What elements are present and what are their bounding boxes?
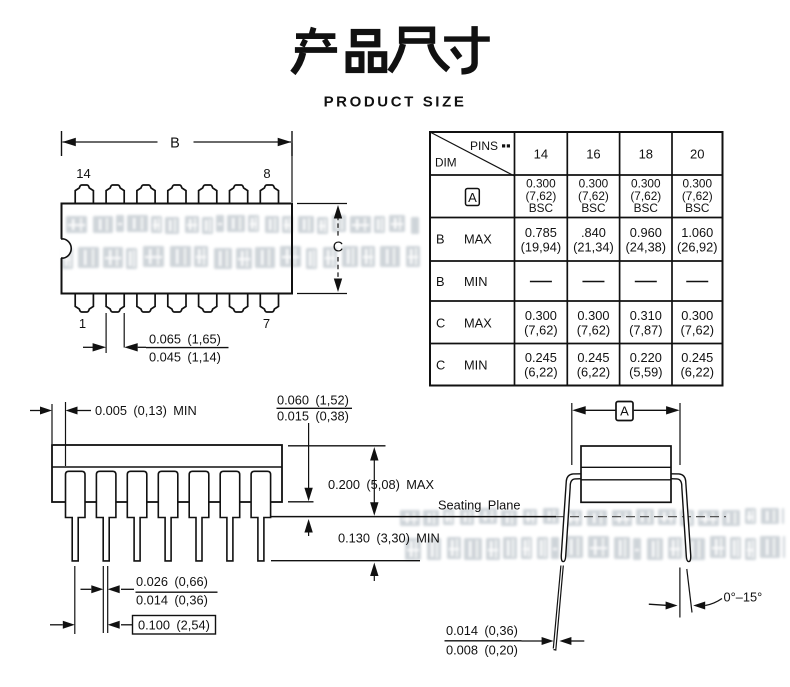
svg-text:1: 1 — [79, 316, 86, 331]
svg-text:0.014 (0,36): 0.014 (0,36) — [446, 623, 518, 638]
svg-text:0.005 (0,13) MIN: 0.005 (0,13) MIN — [95, 403, 197, 418]
svg-text:A: A — [620, 404, 629, 419]
svg-text:C: C — [436, 316, 445, 331]
svg-text:0.245: 0.245 — [525, 350, 557, 365]
svg-text:DIM: DIM — [435, 156, 457, 170]
svg-text:(5,59): (5,59) — [629, 365, 662, 380]
svg-text:16: 16 — [586, 147, 600, 162]
svg-text:0.060 (1,52): 0.060 (1,52) — [277, 393, 349, 408]
svg-text:0.245: 0.245 — [577, 350, 609, 365]
svg-text:0.220: 0.220 — [630, 350, 662, 365]
svg-text:C: C — [436, 358, 445, 373]
svg-text:BSC: BSC — [529, 201, 554, 215]
svg-text:0.026 (0,66): 0.026 (0,66) — [136, 574, 208, 589]
svg-text:0.200 (5,08) MAX: 0.200 (5,08) MAX — [328, 477, 434, 492]
svg-text:(6,22): (6,22) — [681, 365, 714, 380]
svg-text:PRODUCT SIZE: PRODUCT SIZE — [324, 94, 467, 111]
svg-text:0°–15°: 0°–15° — [724, 590, 763, 605]
svg-text:0.785: 0.785 — [525, 225, 557, 240]
svg-text:14: 14 — [76, 166, 90, 181]
svg-text:(6,22): (6,22) — [577, 365, 610, 380]
svg-text:0.065 (1,65): 0.065 (1,65) — [149, 332, 221, 347]
svg-text:0.100 (2,54): 0.100 (2,54) — [138, 618, 210, 633]
svg-text:20: 20 — [690, 147, 704, 162]
svg-text:(7,62): (7,62) — [577, 323, 610, 338]
svg-text:BSC: BSC — [581, 201, 606, 215]
svg-text:(26,92): (26,92) — [677, 240, 718, 255]
svg-text:MAX: MAX — [464, 232, 492, 247]
svg-text:1.060: 1.060 — [681, 225, 713, 240]
svg-text:0.960: 0.960 — [630, 225, 662, 240]
svg-text:0.300: 0.300 — [577, 308, 609, 323]
svg-text:0.310: 0.310 — [630, 308, 662, 323]
svg-text:14: 14 — [534, 147, 548, 162]
svg-text:0.008 (0,20): 0.008 (0,20) — [446, 643, 518, 658]
svg-text:.840: .840 — [581, 225, 606, 240]
svg-text:(24,38): (24,38) — [626, 240, 667, 255]
svg-text:BSC: BSC — [634, 201, 659, 215]
svg-text:B: B — [436, 232, 445, 247]
svg-text:Seating Plane: Seating Plane — [438, 498, 521, 513]
svg-text:0.300: 0.300 — [525, 308, 557, 323]
svg-text:(19,94): (19,94) — [521, 240, 562, 255]
svg-text:18: 18 — [639, 147, 653, 162]
svg-text:B: B — [170, 136, 180, 152]
svg-text:(21,34): (21,34) — [573, 240, 614, 255]
svg-text:C: C — [333, 240, 343, 256]
svg-text:MAX: MAX — [464, 316, 492, 331]
svg-text:BSC: BSC — [685, 201, 710, 215]
svg-text:B: B — [436, 274, 445, 289]
svg-text:A: A — [468, 190, 477, 205]
svg-text:(7,87): (7,87) — [629, 323, 662, 338]
svg-text:0.130 (3,30) MIN: 0.130 (3,30) MIN — [338, 531, 440, 546]
svg-text:(7,62): (7,62) — [681, 323, 714, 338]
svg-text:0.245: 0.245 — [681, 350, 713, 365]
svg-text:8: 8 — [263, 166, 270, 181]
svg-text:0.014 (0,36): 0.014 (0,36) — [136, 593, 208, 608]
svg-text:(7,62): (7,62) — [524, 323, 557, 338]
svg-text:PINS: PINS — [470, 139, 498, 153]
svg-text:MIN: MIN — [464, 358, 487, 373]
svg-text:MIN: MIN — [464, 274, 487, 289]
svg-text:7: 7 — [263, 316, 270, 331]
svg-text:0.300: 0.300 — [681, 308, 713, 323]
svg-text:(6,22): (6,22) — [524, 365, 557, 380]
svg-text:0.045 (1,14): 0.045 (1,14) — [149, 350, 221, 365]
svg-text:0.015 (0,38): 0.015 (0,38) — [277, 409, 349, 424]
